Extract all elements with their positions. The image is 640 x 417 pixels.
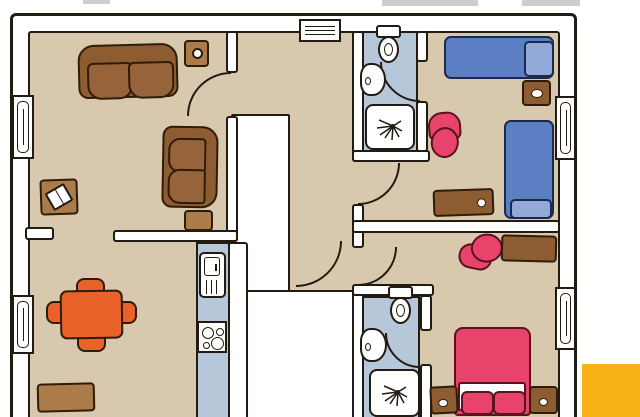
wall-corridor-right-top bbox=[352, 31, 364, 162]
stove-burner bbox=[211, 337, 224, 350]
nightstand bbox=[529, 386, 558, 414]
wall-bathroom-top-right-a bbox=[416, 31, 428, 62]
wall-left-stub bbox=[25, 227, 54, 240]
stove-burner bbox=[202, 327, 214, 339]
window-right-upper bbox=[555, 96, 576, 160]
pink-armchair bbox=[424, 108, 466, 161]
cutoff-fragment bbox=[83, 0, 110, 4]
wall-bathroom-bottom-right-a bbox=[420, 295, 432, 331]
front-door bbox=[299, 19, 341, 42]
front-door-line bbox=[305, 34, 335, 35]
nightstand-handle bbox=[539, 398, 548, 406]
armchair-cushion bbox=[168, 138, 207, 174]
double-bed bbox=[454, 327, 531, 416]
floor-plan-illustration bbox=[0, 0, 640, 417]
fridge-grill bbox=[211, 280, 212, 294]
pink-armchair bbox=[457, 230, 505, 269]
shower bbox=[369, 369, 420, 417]
nightstand-handle bbox=[438, 399, 448, 408]
wall-bedroom-divider bbox=[352, 220, 560, 233]
single-bed-vertical bbox=[504, 120, 554, 219]
sofa bbox=[77, 43, 178, 100]
bed-pillow bbox=[510, 199, 552, 219]
fridge-door bbox=[204, 257, 220, 276]
reading-table bbox=[39, 178, 78, 215]
fridge-grill bbox=[216, 280, 217, 294]
shower-spray-icon bbox=[371, 371, 417, 414]
bed-pillow bbox=[524, 41, 554, 77]
armchair bbox=[161, 126, 218, 209]
window-left-upper bbox=[12, 95, 34, 159]
nightstand bbox=[429, 385, 458, 414]
window-pane bbox=[17, 101, 29, 153]
single-bed-horizontal bbox=[444, 36, 554, 79]
window-left-lower bbox=[12, 295, 34, 354]
stove bbox=[197, 321, 227, 353]
open-book bbox=[44, 183, 73, 211]
window-pane bbox=[17, 301, 29, 348]
armchair-cushion bbox=[167, 169, 206, 205]
cutoff-fragment bbox=[522, 0, 580, 6]
shower-spray-icon bbox=[367, 106, 412, 147]
front-door-line bbox=[305, 26, 335, 27]
desk bbox=[433, 188, 495, 217]
refrigerator bbox=[199, 252, 226, 298]
nightstand-handle bbox=[531, 89, 543, 98]
bed-pillow bbox=[493, 391, 526, 415]
sofa-cushion bbox=[87, 62, 134, 100]
sink-drain bbox=[365, 77, 371, 85]
window-pane bbox=[560, 102, 571, 154]
stove-burner bbox=[203, 342, 210, 349]
sofa-cushion bbox=[128, 61, 175, 99]
stove-burner bbox=[216, 328, 224, 336]
wall-living-dining bbox=[113, 230, 238, 242]
dining-table bbox=[60, 289, 124, 339]
book-spine bbox=[55, 190, 64, 204]
wall-living-right bbox=[226, 116, 238, 242]
stair-void-lower bbox=[245, 290, 358, 417]
sideboard bbox=[37, 382, 96, 413]
fridge-handle bbox=[215, 264, 217, 271]
window-pane bbox=[560, 293, 571, 344]
wall-living-right-stub bbox=[226, 31, 238, 73]
front-door-line bbox=[305, 30, 335, 31]
sink-drain bbox=[365, 343, 371, 351]
toilet bbox=[376, 25, 403, 66]
window-right-lower bbox=[555, 287, 576, 350]
wall-kitchen-right bbox=[228, 242, 248, 417]
sink bbox=[360, 63, 386, 96]
bed-pillow bbox=[461, 391, 494, 415]
cutoff-fragment bbox=[382, 0, 478, 6]
side-table bbox=[184, 210, 213, 231]
lamp-icon bbox=[192, 48, 203, 59]
lamp-side-table bbox=[184, 40, 209, 67]
desk bbox=[501, 234, 558, 262]
toilet-bowl-inner bbox=[396, 304, 405, 317]
fridge-grill bbox=[206, 280, 207, 294]
yellow-corner-swatch bbox=[582, 364, 640, 417]
toilet bbox=[388, 286, 415, 327]
shower bbox=[365, 104, 415, 150]
desk-knob bbox=[477, 198, 486, 207]
toilet-bowl-inner bbox=[384, 43, 393, 56]
sink bbox=[360, 328, 387, 362]
nightstand bbox=[522, 80, 551, 106]
